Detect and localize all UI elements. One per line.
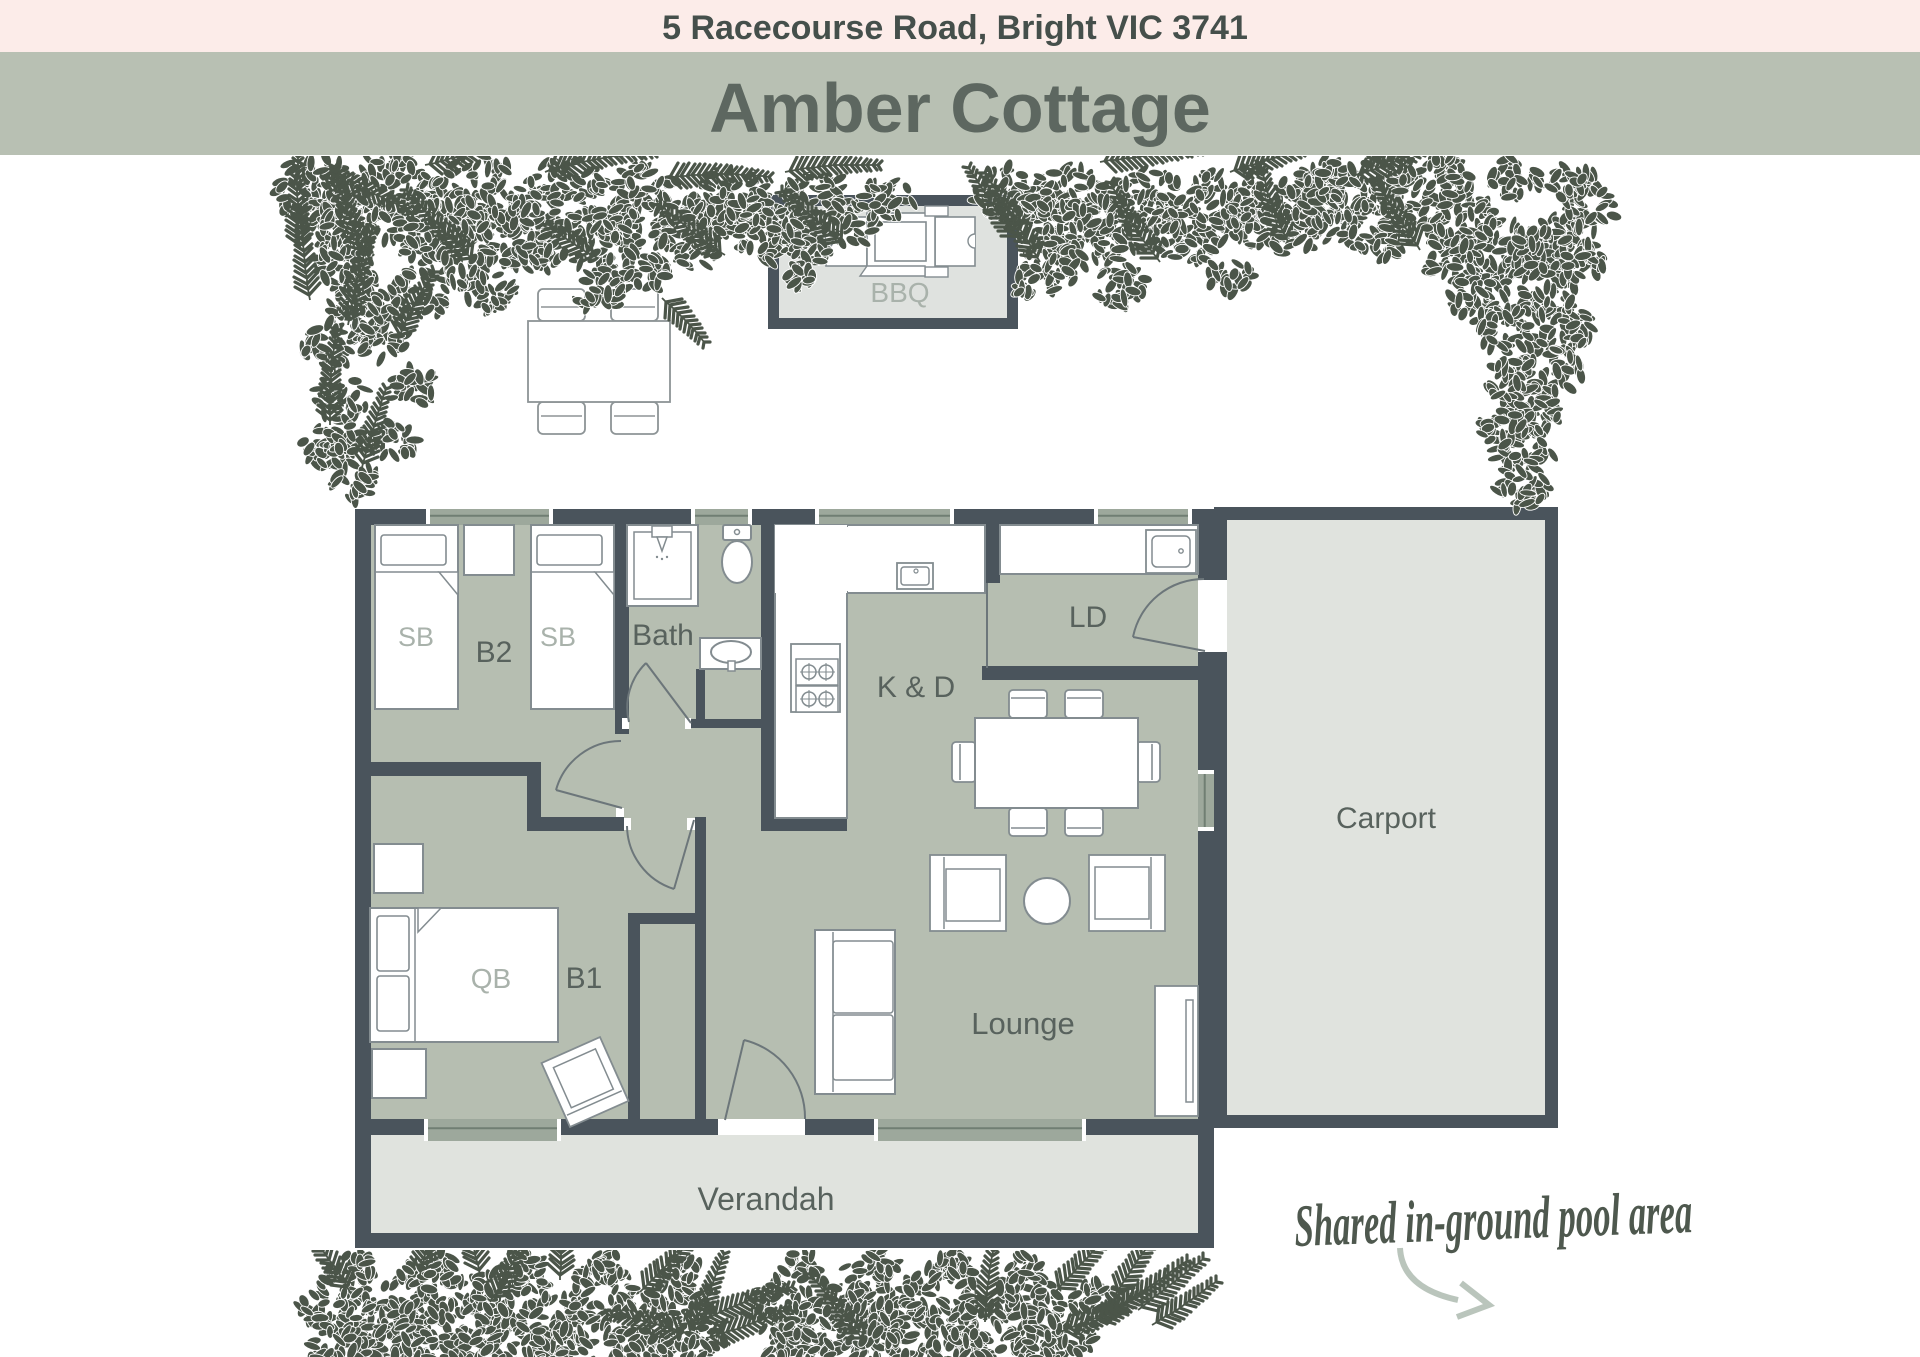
svg-text:K & D: K & D	[877, 671, 955, 704]
svg-text:SB: SB	[540, 622, 576, 652]
svg-text:Shared in-ground pool area: Shared in-ground pool area	[1293, 1179, 1693, 1259]
svg-text:Lounge: Lounge	[971, 1006, 1074, 1041]
svg-text:QB: QB	[471, 963, 511, 994]
svg-text:BBQ: BBQ	[870, 277, 929, 308]
svg-text:LD: LD	[1069, 601, 1107, 634]
svg-text:Amber Cottage: Amber Cottage	[709, 69, 1211, 147]
svg-text:B2: B2	[476, 636, 513, 669]
svg-text:5 Racecourse Road, Bright VIC: 5 Racecourse Road, Bright VIC 3741	[662, 9, 1248, 47]
svg-text:Carport: Carport	[1336, 802, 1437, 835]
svg-text:Bath: Bath	[632, 619, 694, 652]
svg-text:B1: B1	[566, 962, 603, 995]
svg-text:SB: SB	[398, 622, 434, 652]
svg-text:Verandah: Verandah	[697, 1181, 834, 1217]
